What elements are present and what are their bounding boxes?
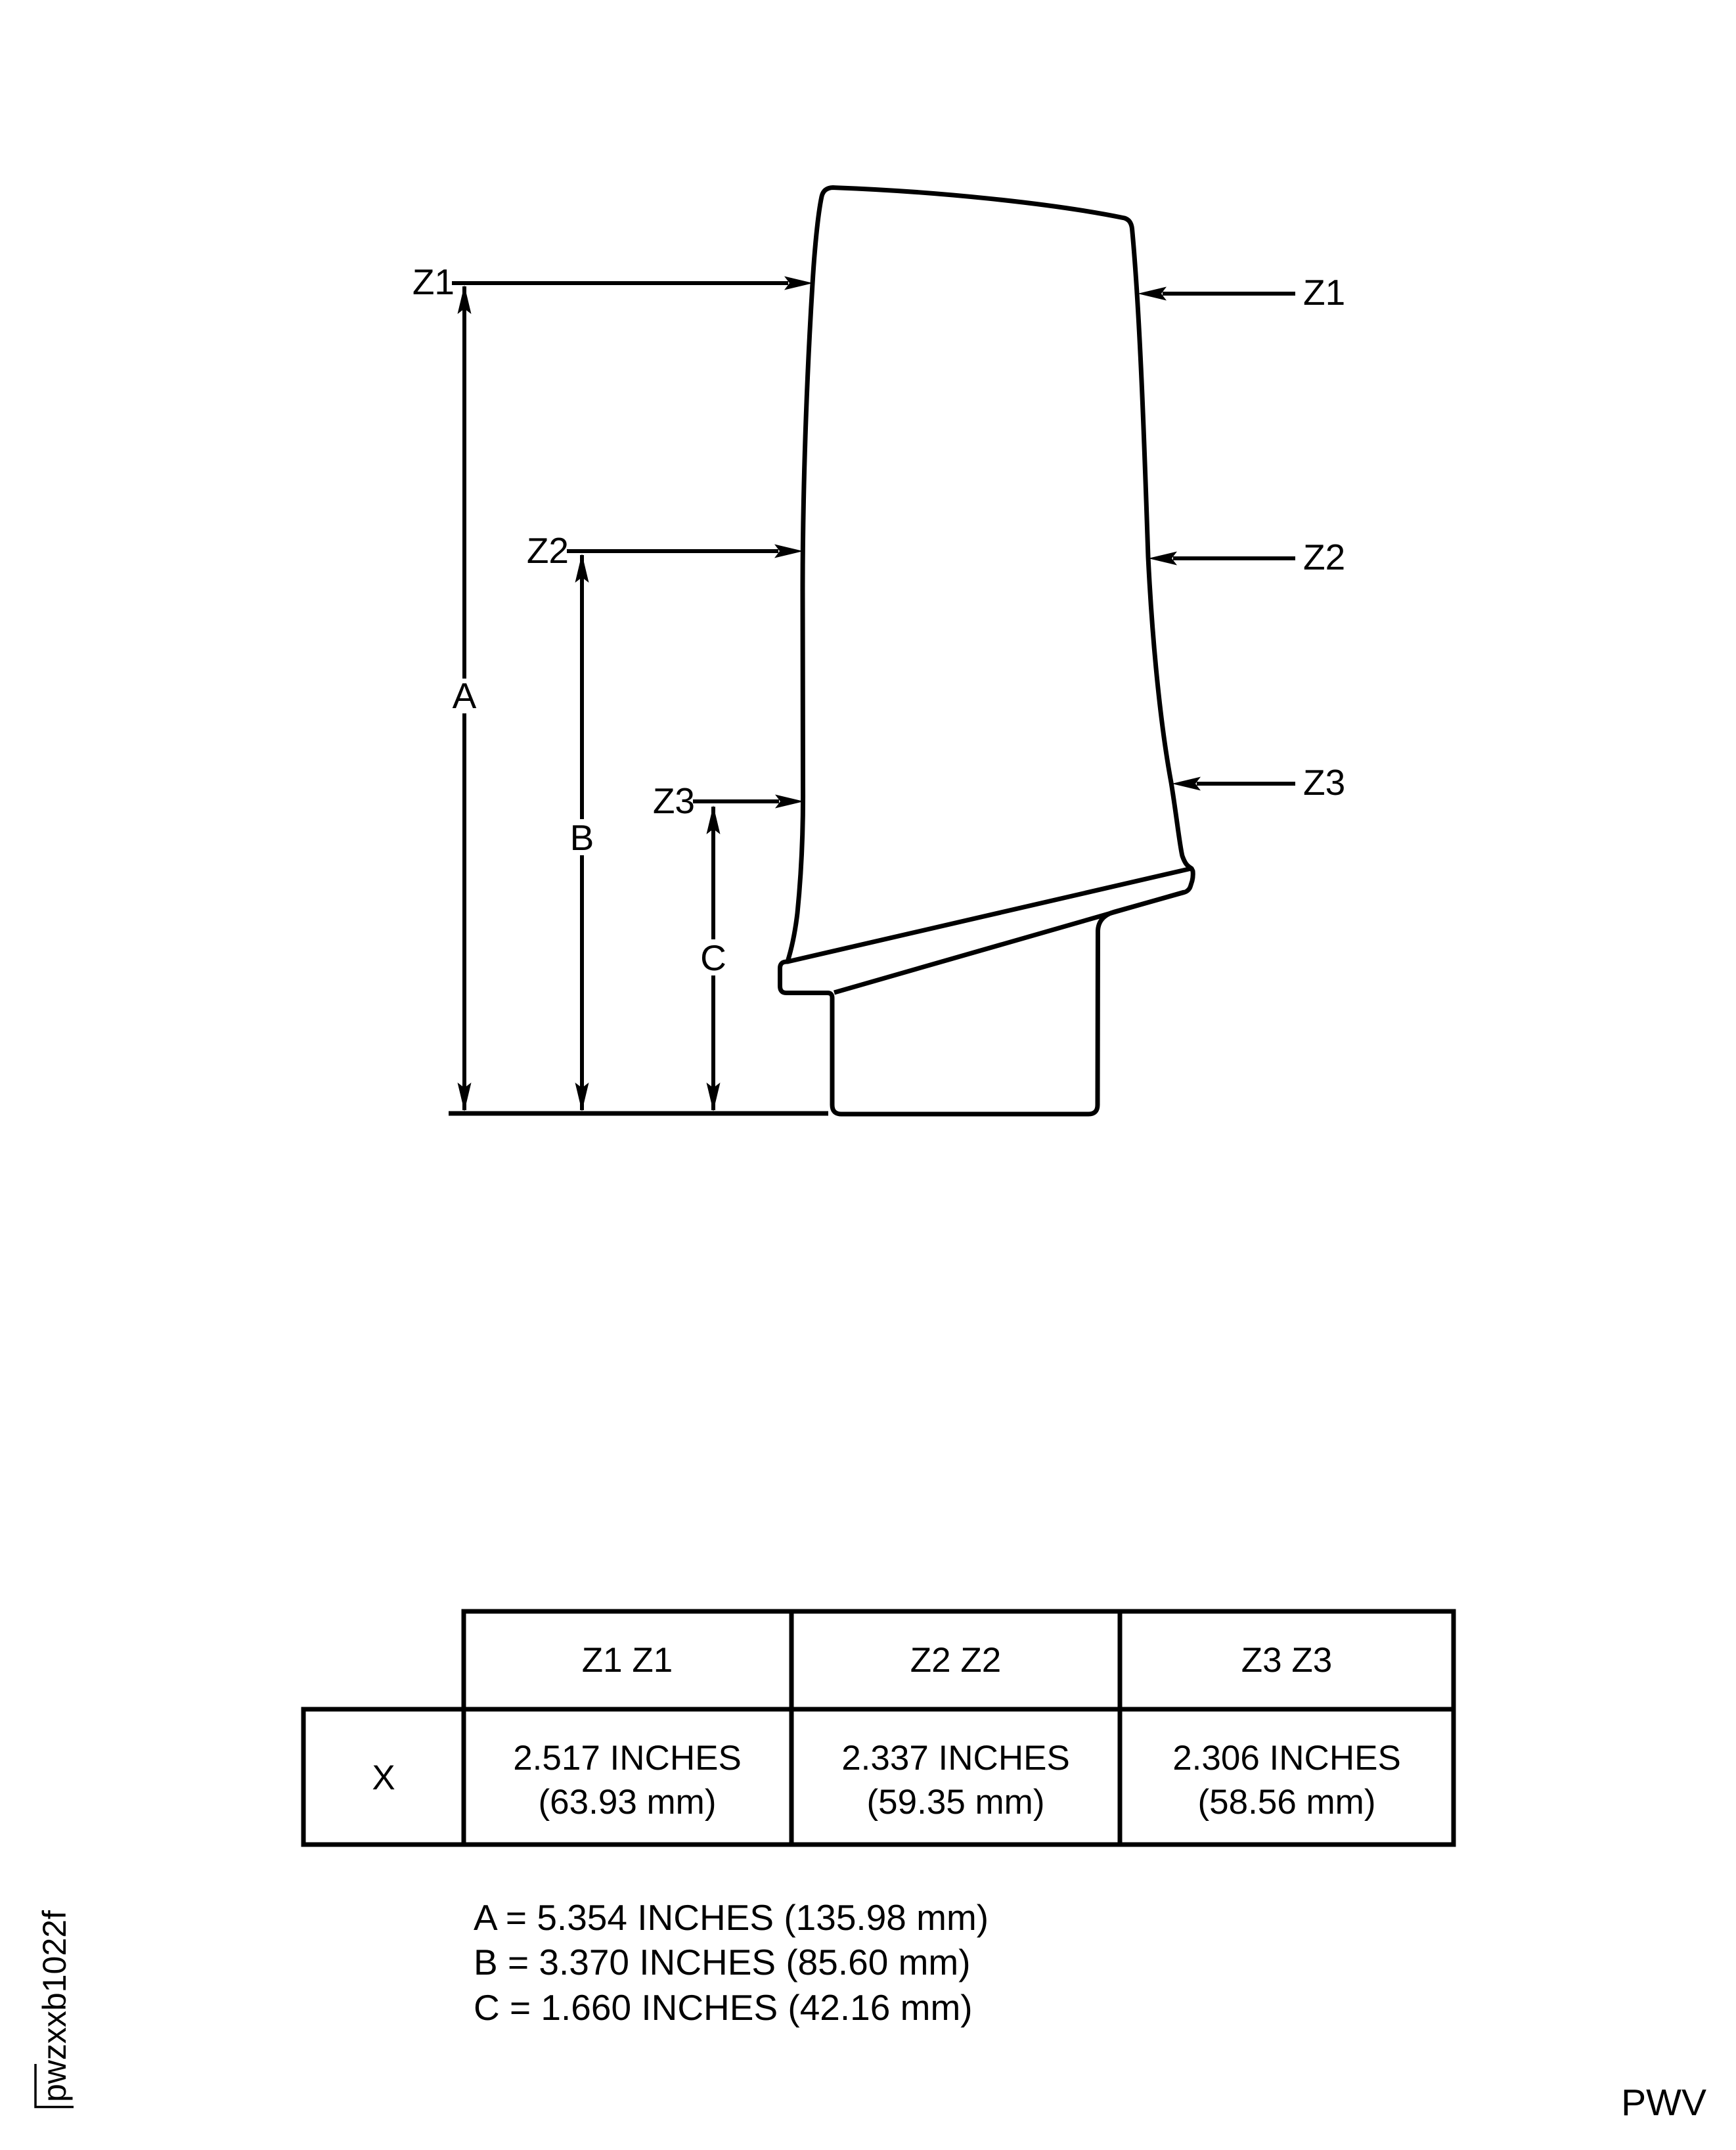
svg-text:(58.56 mm): (58.56 mm) <box>1198 1783 1376 1822</box>
svg-text:B: B <box>570 817 594 858</box>
svg-text:PWV: PWV <box>1621 2082 1706 2124</box>
svg-text:Z2: Z2 <box>1303 537 1345 577</box>
svg-text:2.517 INCHES: 2.517 INCHES <box>513 1739 742 1778</box>
svg-text:pwzxxb1022f: pwzxxb1022f <box>36 1910 73 2102</box>
svg-text:2.306 INCHES: 2.306 INCHES <box>1172 1739 1401 1778</box>
svg-text:(59.35 mm): (59.35 mm) <box>867 1783 1045 1822</box>
svg-text:X: X <box>372 1758 395 1797</box>
svg-text:A: A <box>453 675 477 716</box>
svg-text:B = 3.370 INCHES (85.60 mm): B = 3.370 INCHES (85.60 mm) <box>474 1942 971 1982</box>
svg-text:C = 1.660 INCHES (42.16 mm): C = 1.660 INCHES (42.16 mm) <box>474 1987 973 2028</box>
svg-text:Z3: Z3 <box>653 780 695 821</box>
svg-text:C: C <box>700 937 726 978</box>
svg-text:(63.93 mm): (63.93 mm) <box>539 1783 717 1822</box>
svg-text:2.337 INCHES: 2.337 INCHES <box>841 1739 1070 1778</box>
svg-text:Z1: Z1 <box>412 261 455 302</box>
svg-text:Z1 Z1: Z1 Z1 <box>582 1641 673 1680</box>
svg-text:Z1: Z1 <box>1303 272 1345 313</box>
svg-text:Z2 Z2: Z2 Z2 <box>910 1641 1001 1680</box>
svg-text:Z3 Z3: Z3 Z3 <box>1241 1641 1332 1680</box>
svg-text:Z3: Z3 <box>1303 762 1345 803</box>
svg-text:A = 5.354 INCHES (135.98 mm): A = 5.354 INCHES (135.98 mm) <box>474 1897 989 1938</box>
svg-text:Z2: Z2 <box>527 530 569 571</box>
